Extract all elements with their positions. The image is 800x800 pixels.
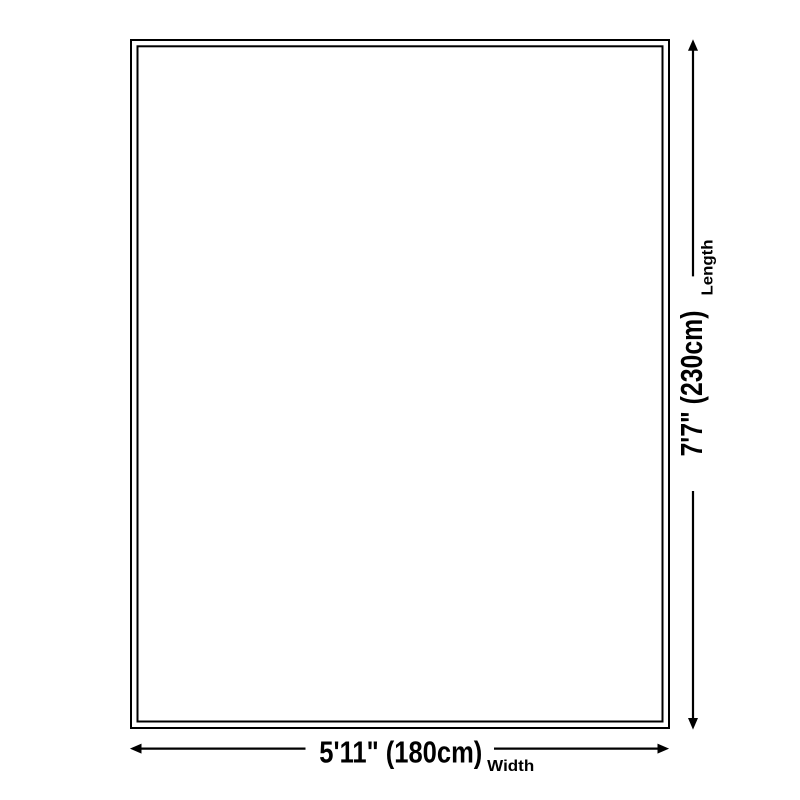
svg-text:Width: Width — [487, 758, 534, 775]
svg-text:7'7" (230cm): 7'7" (230cm) — [674, 311, 709, 457]
svg-text:5'11" (180cm): 5'11" (180cm) — [319, 735, 482, 770]
svg-text:Length: Length — [700, 240, 717, 296]
